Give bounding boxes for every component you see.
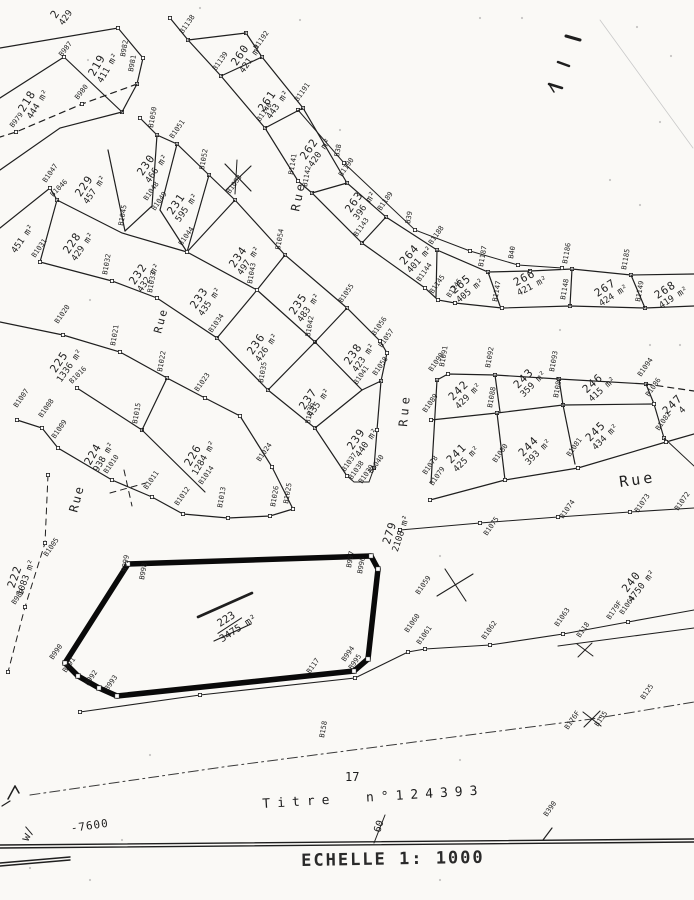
boundary-line xyxy=(0,857,70,863)
boundary-point-label: B1093 xyxy=(548,350,560,372)
boundary-line xyxy=(578,643,592,657)
street-label: Rue xyxy=(151,306,170,334)
boundary-point-label: B1051 xyxy=(168,118,187,140)
survey-point-marker xyxy=(155,296,158,299)
boundary-point-label: B1031 xyxy=(30,237,49,259)
street-label: Rue xyxy=(618,468,656,491)
scan-speck xyxy=(299,19,301,21)
boundary-point-label: B1007 xyxy=(12,387,31,409)
boundary-point-label: B1061 xyxy=(415,624,434,646)
boundary-point-label: B135 xyxy=(593,710,609,728)
boundary-line xyxy=(110,483,146,493)
parcel-label: 244393 m² xyxy=(515,428,554,467)
survey-point-marker xyxy=(664,440,667,443)
scan-speck xyxy=(439,555,441,557)
boundary-point-label: B1058 xyxy=(371,355,390,377)
scan-speck xyxy=(339,129,341,131)
survey-point-marker xyxy=(78,710,81,713)
boundary-point-label: B1045 xyxy=(117,204,129,226)
street-label: Rue xyxy=(396,392,413,427)
survey-point-marker xyxy=(181,512,184,515)
survey-point-marker xyxy=(43,541,46,544)
boundary-point-label: B1186 xyxy=(561,242,573,264)
boundary-point-label: B1059 xyxy=(414,574,433,596)
handwritten-note: w/ xyxy=(18,824,37,843)
survey-point-marker xyxy=(203,396,206,399)
boundary-point-label: B158 xyxy=(318,720,329,738)
boundary-line xyxy=(217,290,257,338)
boundary-line xyxy=(0,842,694,848)
survey-point-marker xyxy=(15,418,18,421)
survey-point-marker xyxy=(628,510,631,513)
boundary-line xyxy=(8,786,15,799)
parcel-area: 429 xyxy=(58,9,76,28)
boundary-point-label: B125 xyxy=(639,683,655,701)
boundary-point-label: B987 xyxy=(57,40,74,58)
boundary-point-label: B1020 xyxy=(53,303,72,325)
boundary-point-label: B1050 xyxy=(147,106,159,128)
boundary-point-label: B1187 xyxy=(477,245,489,267)
street-label: Rue xyxy=(66,483,87,513)
survey-point-marker xyxy=(353,676,356,679)
survey-point-marker xyxy=(376,567,381,572)
boundary-line xyxy=(268,342,315,390)
boundary-line xyxy=(183,509,293,518)
street-label: Rue xyxy=(288,180,308,213)
survey-point-marker xyxy=(428,498,431,501)
boundary-point-label: B1088 xyxy=(486,386,498,408)
boundary-point-label: B981 xyxy=(127,54,138,72)
scale-label: ECHELLE 1: 1000 xyxy=(301,848,485,871)
boundary-line xyxy=(445,569,466,601)
survey-point-marker xyxy=(626,620,629,623)
parcel-label: 267424 m² xyxy=(590,272,630,309)
survey-point-marker xyxy=(40,426,43,429)
survey-point-marker xyxy=(75,386,78,389)
boundary-point-label: B1013 xyxy=(216,486,228,508)
survey-point-marker xyxy=(168,16,171,19)
handwritten-note: 60 xyxy=(372,819,386,834)
scan-speck xyxy=(679,344,681,346)
survey-point-marker xyxy=(385,351,388,354)
parcel-label: 2404750 m² xyxy=(616,561,657,605)
boundary-point-label: B1185 xyxy=(620,248,632,270)
parcel-label: 235483 m² xyxy=(285,284,322,324)
survey-point-marker xyxy=(198,693,201,696)
survey-point-marker xyxy=(138,116,141,119)
survey-point-marker xyxy=(436,298,439,301)
boundary-point-label: B1005 xyxy=(42,536,61,558)
parcel-label: 268419 m² xyxy=(650,274,690,311)
survey-point-marker xyxy=(516,263,519,266)
survey-point-marker xyxy=(118,350,121,353)
boundary-point-label: B1011 xyxy=(142,469,161,491)
survey-point-marker xyxy=(97,686,102,691)
survey-point-marker xyxy=(115,694,120,699)
boundary-point-label: B1032 xyxy=(101,253,113,275)
survey-point-marker xyxy=(291,507,294,510)
parcel-label: 230466 m² xyxy=(133,145,170,185)
parcel-label: 219411 m² xyxy=(85,45,121,85)
survey-point-marker xyxy=(561,632,564,635)
survey-point-marker xyxy=(255,288,258,291)
boundary-line xyxy=(543,828,552,840)
boundary-line xyxy=(0,860,70,866)
survey-point-marker xyxy=(576,466,579,469)
survey-point-marker xyxy=(226,516,229,519)
scan-speck xyxy=(89,299,91,301)
survey-point-marker xyxy=(413,228,416,231)
boundary-point-label: B40 xyxy=(507,245,517,259)
boundary-line xyxy=(664,438,694,466)
scan-speck xyxy=(149,754,151,756)
parcel-label: 262420 m² xyxy=(296,129,333,169)
boundary-line xyxy=(400,508,694,530)
parcel-label: 242429 m² xyxy=(445,372,484,411)
boundary-point-label: B1053 xyxy=(225,173,244,195)
survey-point-marker xyxy=(38,260,41,263)
parcel-label: 234497 m² xyxy=(225,237,262,277)
scan-speck xyxy=(121,839,123,841)
survey-point-marker xyxy=(500,306,503,309)
scan-speck xyxy=(459,759,461,761)
boundary-point-label: B1047 xyxy=(41,162,60,184)
survey-point-marker xyxy=(488,643,491,646)
boundary-line xyxy=(15,786,19,793)
boundary-point-label: B1094 xyxy=(636,356,655,378)
boundary-point-label: B1062 xyxy=(480,619,499,641)
boundary-point-label: B1138 xyxy=(178,13,197,35)
boundary-point-label: B1022 xyxy=(156,350,168,372)
survey-point-marker xyxy=(453,301,456,304)
boundary-point-label: B1089 xyxy=(421,392,440,414)
boundary-line xyxy=(188,33,246,40)
parcel-label: 238423 m² xyxy=(340,334,377,374)
boundary-point-label: B118 xyxy=(575,621,591,639)
survey-point-marker xyxy=(6,670,9,673)
scan-speck xyxy=(636,26,638,28)
survey-point-marker xyxy=(423,647,426,650)
boundary-point-label: B1060 xyxy=(403,612,422,634)
boundary-point-label: B1139 xyxy=(211,50,230,72)
boundary-point-label: B1009 xyxy=(50,418,69,440)
boundary-line xyxy=(600,20,693,148)
survey-point-marker xyxy=(46,473,49,476)
boundary-point-label: B1044 xyxy=(177,225,196,247)
boundary-point-label: B1026 xyxy=(269,485,281,507)
parcel-label: 245434 m² xyxy=(582,413,621,452)
survey-point-marker xyxy=(503,478,506,481)
scan-speck xyxy=(639,204,641,206)
survey-point-marker xyxy=(61,333,64,336)
boundary-point-label: B1075 xyxy=(482,515,501,537)
parcel-label: 241425 m² xyxy=(443,435,482,474)
parcel-label: 2792108 m² xyxy=(379,510,413,553)
scan-speck xyxy=(649,344,651,346)
boundary-line xyxy=(0,839,694,845)
survey-point-marker xyxy=(116,26,119,29)
parcel-label: 246415 m² xyxy=(578,366,618,405)
survey-point-marker xyxy=(369,554,374,559)
boundary-line xyxy=(312,183,347,193)
boundary-line xyxy=(315,308,347,342)
scan-speck xyxy=(521,17,523,19)
boundary-point-label: B1191 xyxy=(293,81,312,103)
survey-point-marker xyxy=(23,605,26,608)
boundary-point-label: B1080 xyxy=(491,442,510,464)
survey-point-marker xyxy=(110,478,113,481)
boundary-line xyxy=(558,62,569,66)
boundary-point-label: B1147 xyxy=(491,280,503,302)
survey-point-marker xyxy=(446,372,449,375)
parcel-area: 4 xyxy=(677,405,688,416)
parcel-label: 243359 m² xyxy=(510,360,549,399)
boundary-point-label: B1015 xyxy=(131,402,143,424)
survey-point-marker xyxy=(76,674,81,679)
survey-point-marker xyxy=(652,402,655,405)
boundary-point-label: B1008 xyxy=(37,397,56,419)
survey-point-marker xyxy=(406,650,409,653)
cadastral-map-scan: 2233475 m²2429219411 m²218444 m²260421 m… xyxy=(0,0,694,900)
survey-point-marker xyxy=(268,514,271,517)
survey-point-marker xyxy=(270,465,273,468)
boundary-point-label: B1148 xyxy=(559,278,571,300)
boundary-line xyxy=(2,801,10,806)
boundary-point-label: B982 xyxy=(119,39,130,57)
boundary-line xyxy=(566,36,580,40)
boundary-point-label: B1074 xyxy=(558,498,577,520)
scan-speck xyxy=(559,329,561,331)
highlighted-parcel-label: 2233475 m² xyxy=(210,600,260,645)
boundary-point-label: B38 xyxy=(333,143,343,157)
survey-point-marker xyxy=(468,249,471,252)
boundary-point-label: B1055 xyxy=(337,282,356,304)
survey-point-marker xyxy=(185,250,188,253)
parcel-label: 266421 m² xyxy=(510,263,550,299)
scan-speck xyxy=(199,7,201,9)
boundary-point-label: B1021 xyxy=(109,324,121,346)
survey-point-marker xyxy=(366,657,371,662)
survey-point-marker xyxy=(429,418,432,421)
boundary-point-label: B1081 xyxy=(565,436,584,458)
boundary-line xyxy=(257,255,285,290)
boundary-point-label: B996 xyxy=(356,556,367,574)
scan-speck xyxy=(659,121,661,123)
boundary-point-label: B1190 xyxy=(337,156,356,178)
parcel-label: 236426 m² xyxy=(243,324,280,364)
scan-speck xyxy=(29,867,31,869)
survey-point-marker xyxy=(423,286,426,289)
boundary-line xyxy=(362,381,381,390)
parcel-label: 263396 m² xyxy=(341,182,378,222)
plot-17-label: 17 xyxy=(345,770,359,784)
scan-speck xyxy=(89,879,91,881)
parcel-label: 2429 xyxy=(47,1,75,28)
boundary-line xyxy=(142,378,167,430)
boundary-point-label: B1149 xyxy=(634,280,646,302)
scan-speck xyxy=(670,55,672,57)
survey-point-marker xyxy=(150,495,153,498)
boundary-point-label: B999 xyxy=(120,554,131,572)
boundary-point-label: B1141 xyxy=(287,153,299,175)
boundary-point-label: B980 xyxy=(73,83,90,101)
boundary-point-label: B1145 xyxy=(428,273,447,295)
survey-point-marker xyxy=(141,56,144,59)
boundary-point-label: B1025 xyxy=(282,482,294,504)
boundary-point-label: B1023 xyxy=(193,371,212,393)
boundary-point-label: B1092 xyxy=(484,346,496,368)
boundary-line xyxy=(430,434,694,500)
survey-point-marker xyxy=(238,414,241,417)
parcel-label: 237435 m² xyxy=(295,379,332,419)
boundary-point-label: B979 xyxy=(8,111,25,129)
map-canvas: 2233475 m²2429219411 m²218444 m²260421 m… xyxy=(0,0,694,900)
scan-speck xyxy=(479,17,481,19)
parcel-label: 231595 m² xyxy=(163,184,200,224)
boundary-point-label: B1063 xyxy=(553,606,572,628)
survey-point-marker xyxy=(56,446,59,449)
boundary-point-label: B1054 xyxy=(274,228,286,250)
scan-speck xyxy=(439,879,441,881)
boundary-point-label: B997 xyxy=(345,550,356,568)
parcel-label: 228429 m² xyxy=(59,223,96,263)
boundary-point-label: B998 xyxy=(138,562,149,580)
boundary-line xyxy=(0,322,205,398)
survey-point-marker xyxy=(110,279,113,282)
boundary-point-label: B39 xyxy=(404,210,414,224)
scan-speck xyxy=(87,59,89,61)
survey-point-marker xyxy=(14,130,17,133)
survey-point-marker xyxy=(478,521,481,524)
boundary-line xyxy=(570,269,572,306)
boundary-point-label: B993 xyxy=(103,674,119,692)
boundary-point-label: B1052 xyxy=(198,148,210,170)
survey-point-marker xyxy=(80,102,83,105)
boundary-point-label: B1091 xyxy=(438,345,450,367)
parcel-label: 229457 m² xyxy=(71,166,108,206)
boundary-point-label: B1035 xyxy=(257,361,269,383)
boundary-point-label: B1012 xyxy=(173,485,192,507)
scan-speck xyxy=(609,179,611,181)
boundary-point-label: B990 xyxy=(48,643,64,661)
survey-point-marker xyxy=(560,266,563,269)
boundary-line xyxy=(80,610,694,712)
boundary-point-label: B390 xyxy=(542,800,558,818)
